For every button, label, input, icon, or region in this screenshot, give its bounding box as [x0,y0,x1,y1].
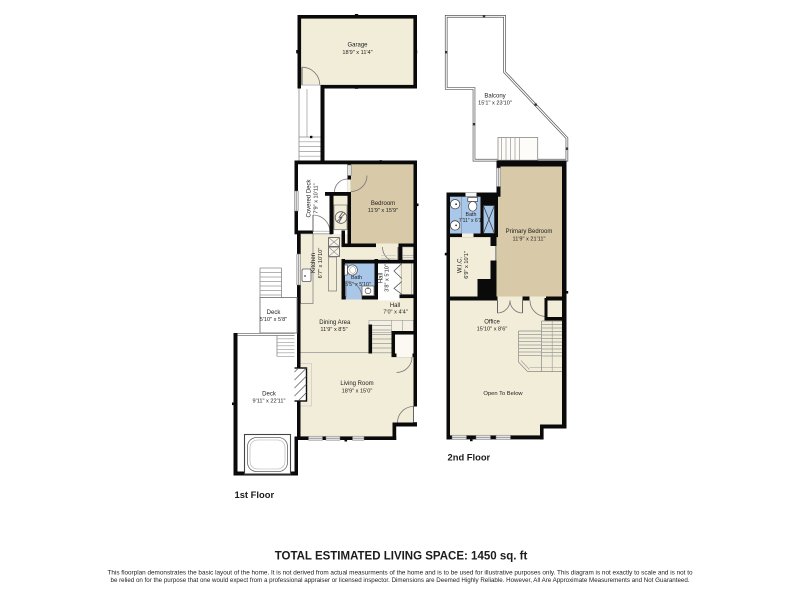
svg-text:Deck: Deck [267,310,282,316]
svg-text:15'10" x 8'6": 15'10" x 8'6" [477,326,508,332]
svg-text:TOTAL ESTIMATED LIVING SPACE:: TOTAL ESTIMATED LIVING SPACE: 1450 sq. f… [275,550,528,562]
svg-text:11'9" x 8'5": 11'9" x 8'5" [320,327,347,333]
svg-text:5'10" x 5'8": 5'10" x 5'8" [260,317,288,323]
svg-text:Bedroom: Bedroom [371,201,395,207]
svg-text:7'9" x 10'11": 7'9" x 10'11" [313,183,319,213]
svg-text:18'9" x 11'4": 18'9" x 11'4" [342,50,372,56]
svg-text:Living Room: Living Room [340,381,373,387]
svg-text:9'11" x 22'11": 9'11" x 22'11" [253,399,286,405]
svg-text:7'0" x 4'4": 7'0" x 4'4" [383,309,407,315]
svg-text:Balcony: Balcony [484,94,505,100]
svg-text:Kitchen: Kitchen [311,253,317,273]
svg-text:Open To Below: Open To Below [483,391,523,397]
svg-text:Dining Area: Dining Area [319,320,351,326]
svg-text:1st Floor: 1st Floor [235,489,275,500]
svg-text:6'9" x 10'1": 6'9" x 10'1" [464,251,470,279]
svg-text:Deck: Deck [262,392,277,398]
svg-text:11'9" x 15'9": 11'9" x 15'9" [368,208,398,214]
svg-text:W.I.C.: W.I.C. [457,257,463,274]
svg-text:Office: Office [484,320,500,326]
svg-text:be relied on for the purpose t: be relied on for the purpose that one wo… [111,577,690,584]
svg-text:11'9" x 21'11": 11'9" x 21'11" [513,236,546,242]
svg-text:3'8" x 5'10": 3'8" x 5'10" [385,264,391,292]
svg-text:Bath: Bath [351,275,362,281]
svg-text:Hall: Hall [390,303,400,309]
svg-text:2nd Floor: 2nd Floor [448,452,491,463]
svg-text:Covered Deck: Covered Deck [307,178,313,217]
svg-text:This floorplan demonstrates th: This floorplan demonstrates the basic la… [108,570,694,577]
svg-text:18'9" x 15'0": 18'9" x 15'0" [342,388,373,394]
svg-text:6'7" x 10'10": 6'7" x 10'10" [318,248,324,279]
svg-text:7'11" x 6'1": 7'11" x 6'1" [459,218,483,224]
svg-text:Bath: Bath [466,212,477,218]
svg-text:15'1" x 23'10": 15'1" x 23'10" [478,101,512,107]
svg-text:Garage: Garage [347,43,368,49]
svg-text:Primary Bedroom: Primary Bedroom [506,229,553,235]
